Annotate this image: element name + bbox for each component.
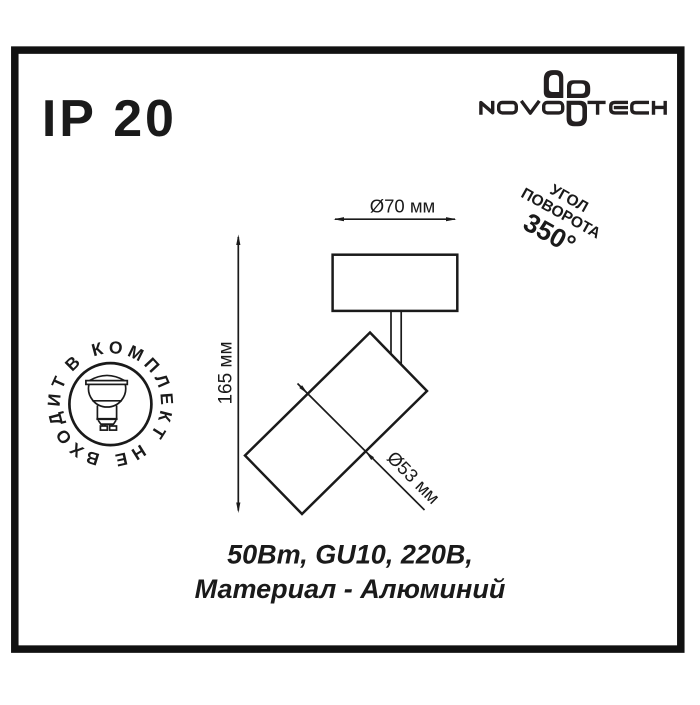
svg-text:165 мм: 165 мм [216,341,237,404]
svg-text:50Вт, GU10, 220В,: 50Вт, GU10, 220В, [227,540,473,570]
svg-text:Материал - Алюминий: Материал - Алюминий [195,574,506,604]
svg-text:В КОМПЛЕКТ НЕ ВХОДИТ: В КОМПЛЕКТ НЕ ВХОДИТ [44,337,178,471]
svg-text:Ø70 мм: Ø70 мм [370,195,436,216]
svg-text:IP 20: IP 20 [42,90,177,148]
